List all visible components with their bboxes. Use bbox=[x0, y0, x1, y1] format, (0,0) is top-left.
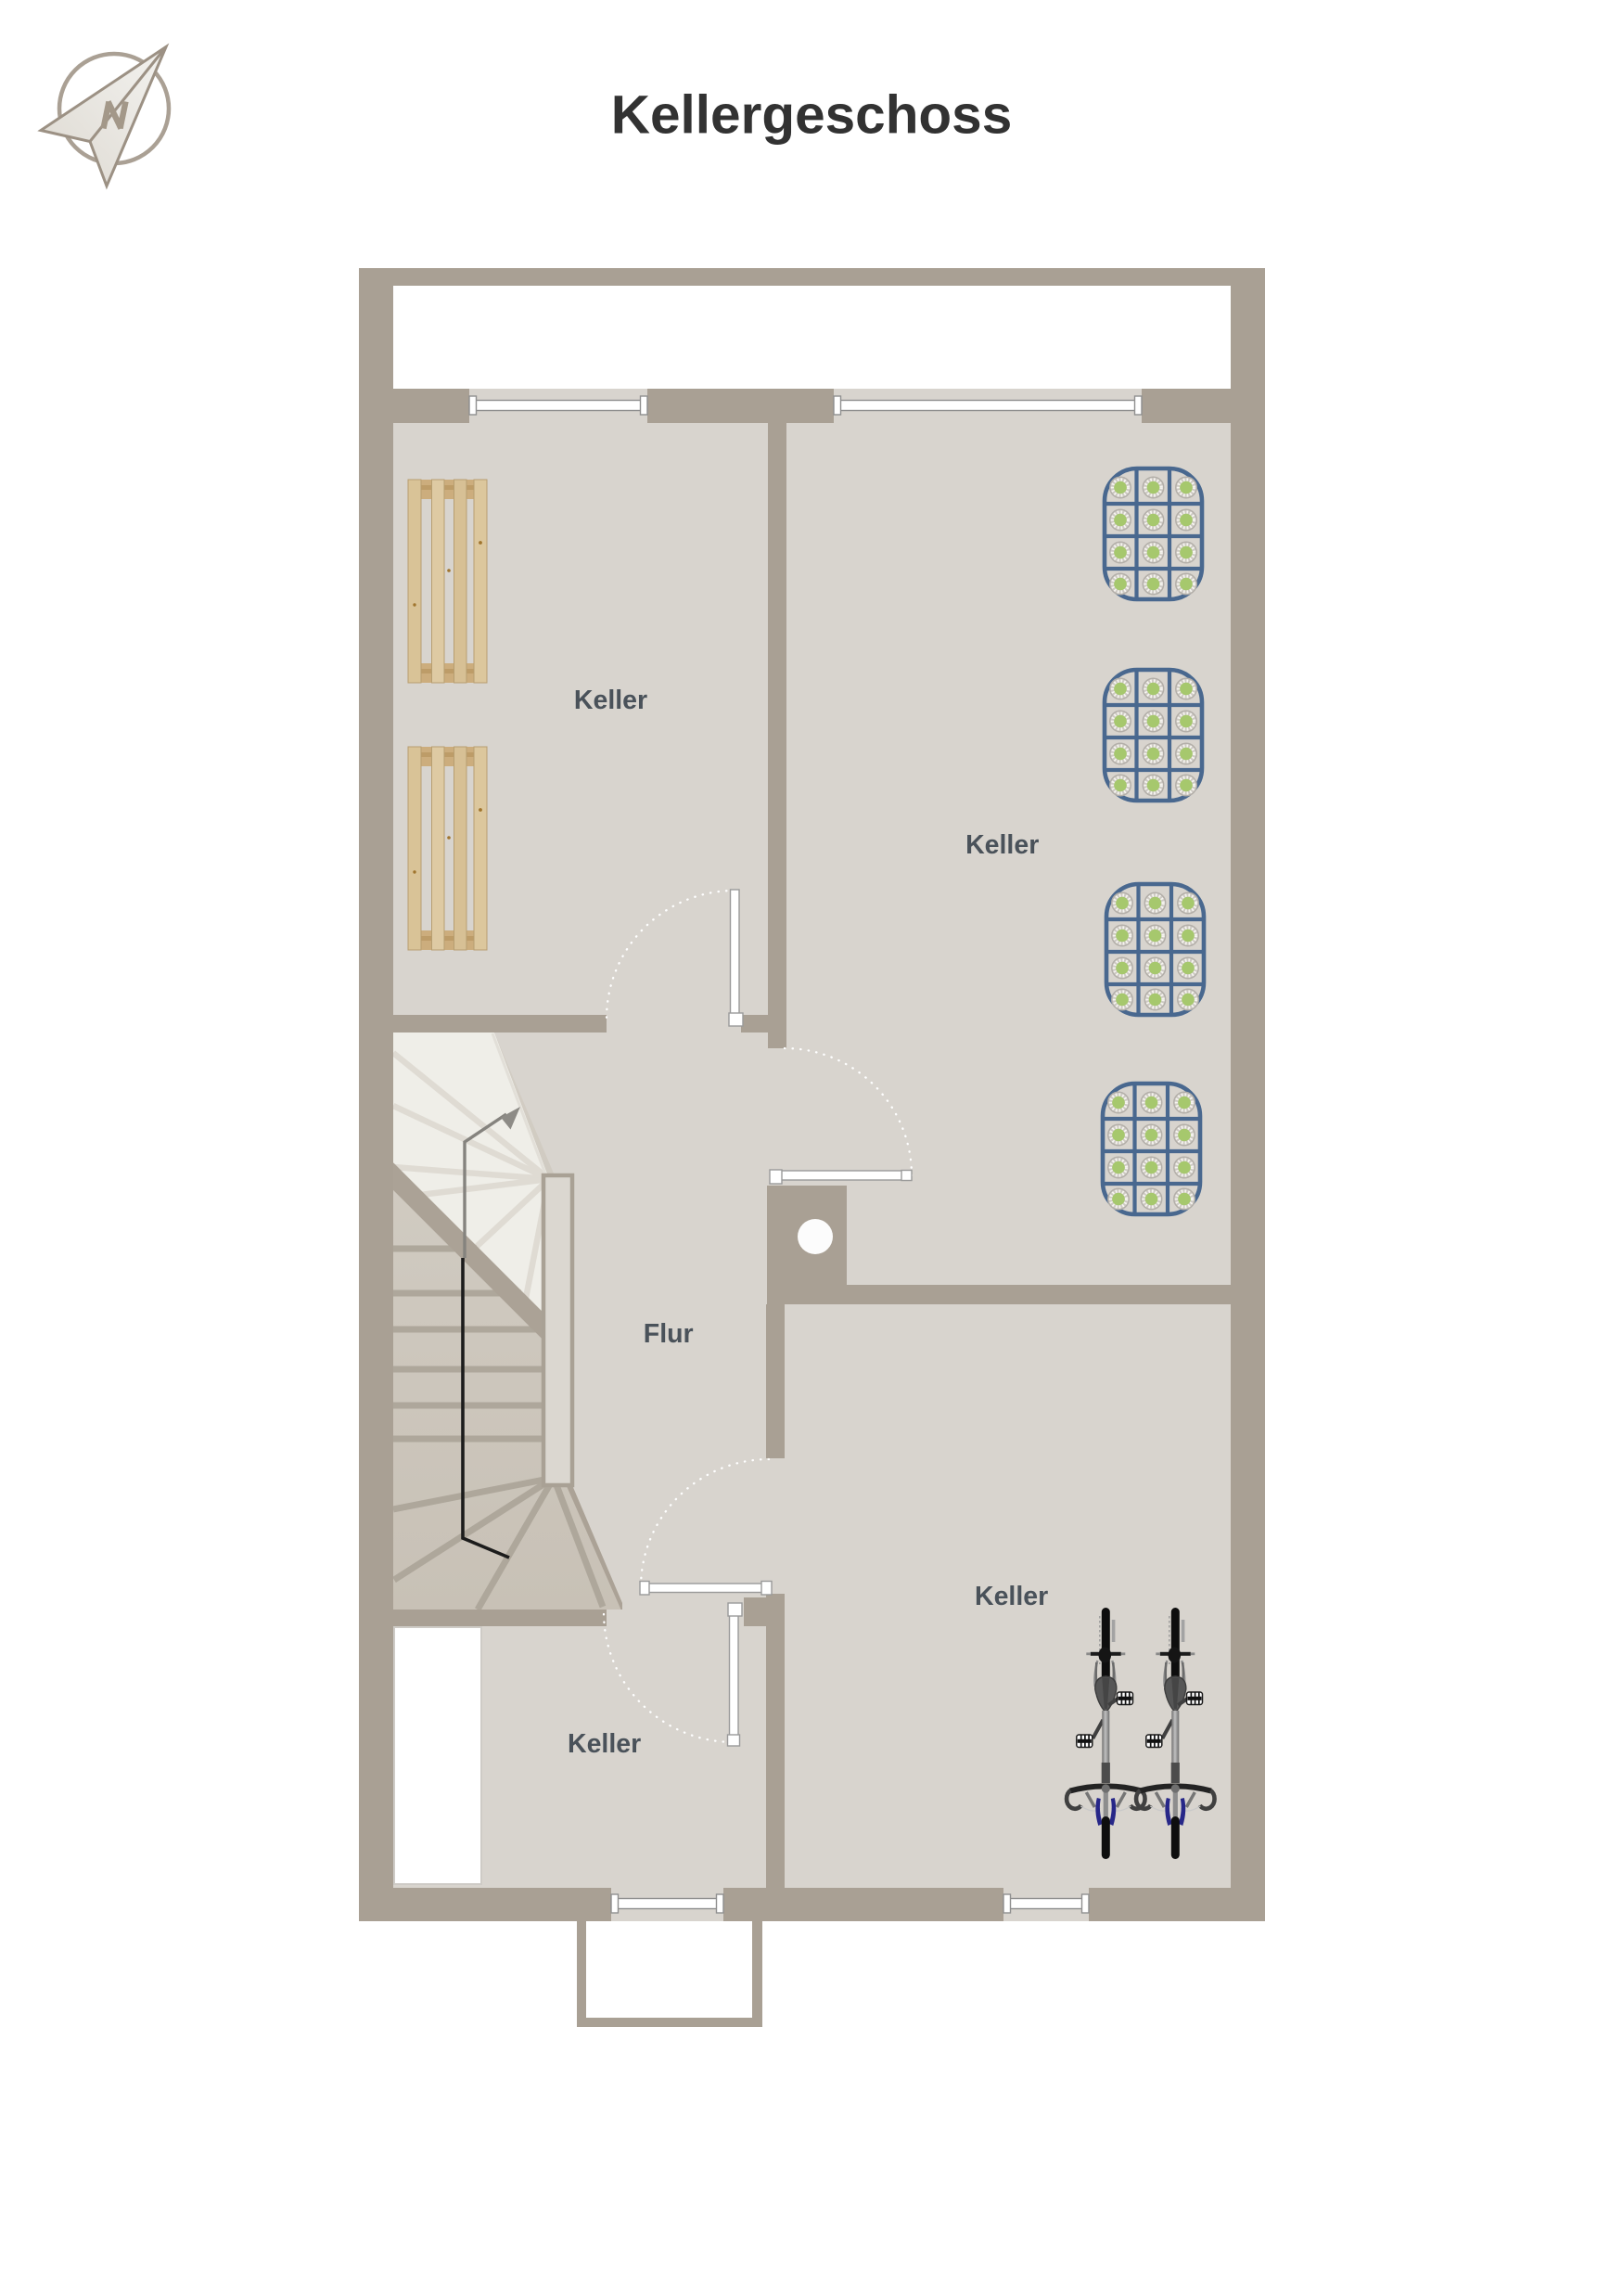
svg-text:Kellergeschoss: Kellergeschoss bbox=[611, 85, 1012, 146]
svg-text:Keller: Keller bbox=[975, 1582, 1048, 1611]
svg-text:Keller: Keller bbox=[568, 1729, 641, 1759]
svg-text:Flur: Flur bbox=[644, 1319, 694, 1349]
svg-text:Keller: Keller bbox=[574, 686, 647, 715]
svg-text:Keller: Keller bbox=[965, 830, 1039, 860]
